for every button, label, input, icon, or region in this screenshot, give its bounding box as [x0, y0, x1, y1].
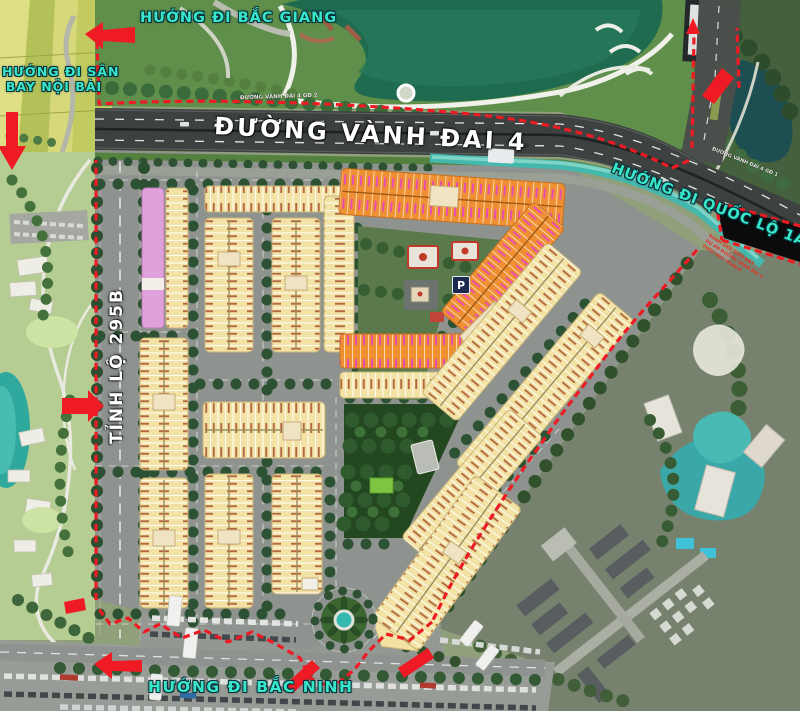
- townhouse-double-row: [203, 402, 325, 458]
- label-tinh-lo-295b: TỈNH LỘ 295B: [107, 281, 127, 451]
- townhouse-strip: [324, 196, 354, 352]
- label-huong-di-san-bay: HƯỚNG ĐI SÂN BAY NỘI BÀI: [2, 64, 106, 94]
- label-huong-di-bac-ninh: HƯỚNG ĐI BẮC NINH: [148, 678, 353, 696]
- townhouse-pair: [140, 338, 188, 470]
- parking-sign: P: [452, 276, 470, 294]
- townhouse-strip: [166, 188, 188, 328]
- townhouse-pair: [272, 474, 322, 594]
- fountain: [337, 613, 352, 628]
- townhouse-pair: [272, 218, 320, 352]
- townhouse-pair: [205, 474, 253, 608]
- masterplan-map: HƯỚNG ĐI BẮC GIANG HƯỚNG ĐI SÂN BAY NỘI …: [0, 0, 800, 711]
- townhouse-pair: [205, 218, 253, 352]
- roundabout: [312, 588, 376, 652]
- townhouse-pair: [140, 478, 188, 608]
- label-huong-di-bac-giang: HƯỚNG ĐI BẮC GIANG: [140, 10, 337, 26]
- sports-field: [370, 478, 393, 493]
- pink-shophouse-strip: [142, 188, 164, 328]
- plaza-circle: [398, 85, 414, 101]
